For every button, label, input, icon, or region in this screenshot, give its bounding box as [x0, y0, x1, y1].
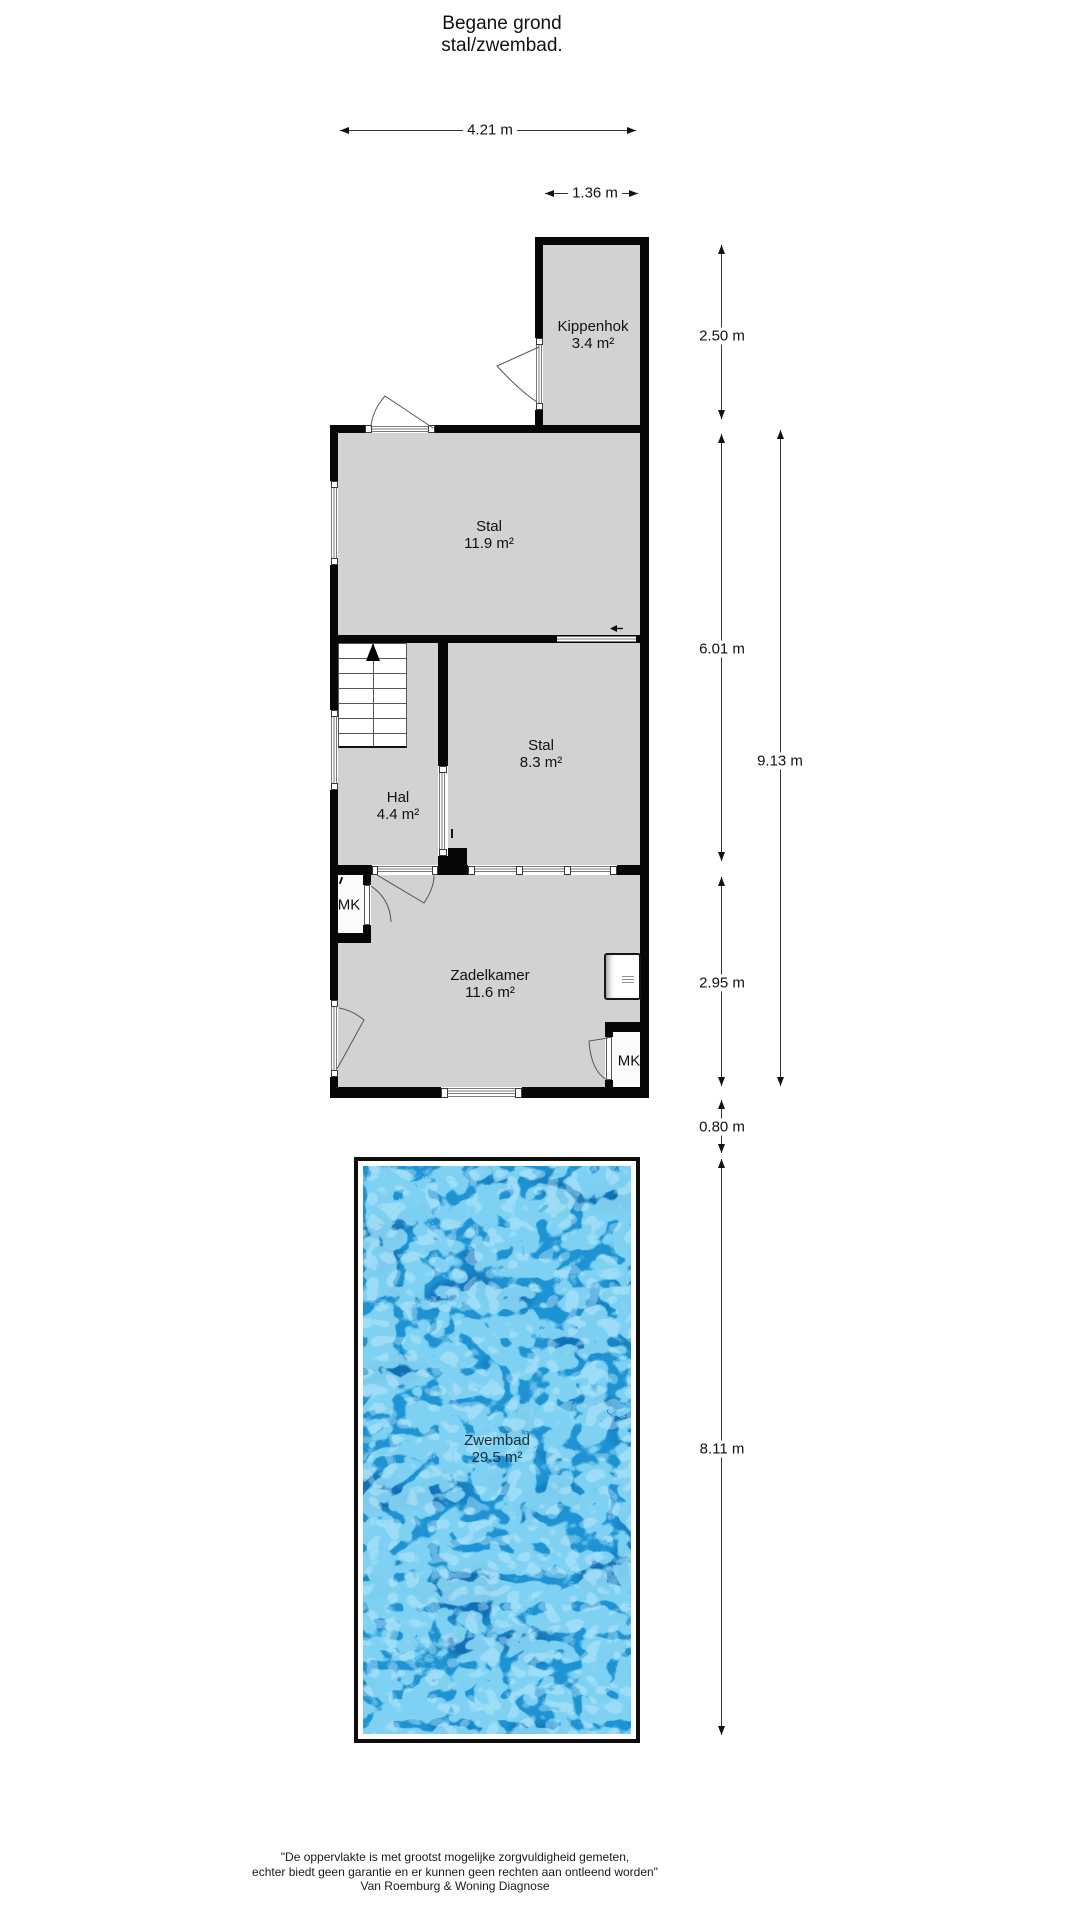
boiler-unit	[604, 953, 641, 1000]
window-hal-cap-top	[331, 710, 338, 717]
door-kippenhok-sill	[536, 345, 542, 403]
door-zadelkamer-sill	[378, 866, 432, 874]
stairs	[338, 643, 407, 748]
door-kippenhok-jamb-top	[536, 338, 543, 345]
page-title-line2: stal/zwembad.	[252, 35, 752, 57]
wall-mk-boven-bottom	[330, 933, 371, 943]
label-zwembad-area: 29.5 m²	[464, 1449, 530, 1466]
door-zadelkamer-links-jamb-bottom	[331, 1070, 338, 1077]
dim-kippenhok-hoogte: 2.50 m	[695, 328, 749, 345]
label-stal-klein-area: 8.3 m²	[520, 754, 563, 771]
label-zwembad-name: Zwembad	[464, 1432, 530, 1449]
label-stal-groot-area: 11.9 m²	[464, 535, 514, 552]
label-hal-name: Hal	[377, 789, 420, 806]
wall-right	[640, 237, 649, 1098]
window-stal-band	[331, 488, 338, 558]
disclaimer-line3: Van Roemburg & Woning Diagnose	[155, 1879, 755, 1894]
label-zwembad: Zwembad 29.5 m²	[464, 1432, 530, 1466]
label-zadelkamer: Zadelkamer 11.6 m²	[450, 967, 529, 1001]
door-hal-stal-band	[439, 773, 447, 849]
wall-kippenhok-top	[535, 237, 649, 245]
door-hal-stal-jamb-bottom	[439, 849, 447, 856]
door-zadelkamer-jamb-right	[432, 866, 438, 875]
page-title-line1: Begane grond	[252, 13, 752, 35]
label-kippenhok-name: Kippenhok	[558, 318, 629, 335]
door-stal-top-jamb-left	[365, 425, 372, 433]
dim-zwembad-lengte: 8.11 m	[696, 1441, 749, 1458]
window-zadelkamer-cap-right	[610, 866, 617, 875]
opening-bottom-band	[448, 1088, 515, 1097]
dim-zadelkamer-hoogte: 2.95 m	[695, 975, 749, 992]
dim-gebouw-hoogte: 9.13 m	[753, 753, 807, 770]
wall-hal-divider-stub	[448, 848, 467, 875]
label-zadelkamer-area: 11.6 m²	[450, 984, 529, 1001]
label-kippenhok: Kippenhok 3.4 m²	[558, 318, 629, 352]
door-arc-stal-top	[371, 396, 433, 428]
window-stal-cap-top	[331, 481, 338, 488]
label-stal-klein: Stal 8.3 m²	[520, 737, 563, 771]
opening-bottom-cap-left	[441, 1088, 448, 1098]
dim-stal-hoogte: 6.01 m	[695, 641, 749, 658]
label-stal-klein-name: Stal	[520, 737, 563, 754]
door-zadelkamer-links-band	[331, 1007, 338, 1070]
dim-stal-breedte: 4.21 m	[463, 122, 517, 139]
label-stal-groot: Stal 11.9 m²	[464, 518, 514, 552]
label-mk-boven: MK	[338, 897, 361, 914]
window-zadelkamer-band	[475, 866, 610, 874]
boiler-vents-icon	[622, 976, 634, 983]
disclaimer: "De oppervlakte is met grootst mogelijke…	[155, 1850, 755, 1894]
door-mk-onder-leaf	[606, 1037, 612, 1080]
opening-stal-bottom-band	[557, 636, 636, 642]
door-zadelkamer-links-jamb-top	[331, 1000, 338, 1007]
page-title: Begane grond stal/zwembad.	[252, 13, 752, 57]
dim-kippenhok-breedte: 1.36 m	[568, 185, 622, 202]
stairs-midline	[373, 644, 374, 746]
dim-tussenruimte: 0.80 m	[695, 1119, 749, 1136]
opening-bottom-cap-right	[515, 1088, 522, 1098]
window-stal-cap-bottom	[331, 558, 338, 565]
window-zadelkamer-post1	[516, 866, 523, 875]
door-arc-kippenhok	[497, 347, 539, 402]
door-hal-stal-tick	[451, 829, 453, 838]
door-stal-top-jamb-right	[428, 425, 435, 433]
door-stal-top-sill	[372, 426, 428, 433]
window-zadelkamer-post2	[564, 866, 571, 875]
door-zadelkamer-jamb-left	[372, 866, 378, 875]
floorplan-page: Begane grond stal/zwembad.	[0, 0, 1080, 1920]
label-kippenhok-area: 3.4 m²	[558, 335, 629, 352]
label-stal-groot-name: Stal	[464, 518, 514, 535]
disclaimer-line1: "De oppervlakte is met grootst mogelijke…	[155, 1850, 755, 1865]
door-kippenhok-jamb-bottom	[536, 403, 543, 410]
door-mk-boven-leaf	[364, 885, 370, 925]
label-mk-onder: MK	[618, 1053, 641, 1070]
label-hal: Hal 4.4 m²	[377, 789, 420, 823]
label-hal-area: 4.4 m²	[377, 806, 420, 823]
disclaimer-line2: echter biedt geen garantie en er kunnen …	[155, 1865, 755, 1880]
window-hal-band	[331, 717, 338, 783]
door-hal-stal-jamb-top	[439, 766, 447, 773]
window-zadelkamer-cap-left	[468, 866, 475, 875]
label-zadelkamer-name: Zadelkamer	[450, 967, 529, 984]
window-hal-cap-bottom	[331, 783, 338, 790]
